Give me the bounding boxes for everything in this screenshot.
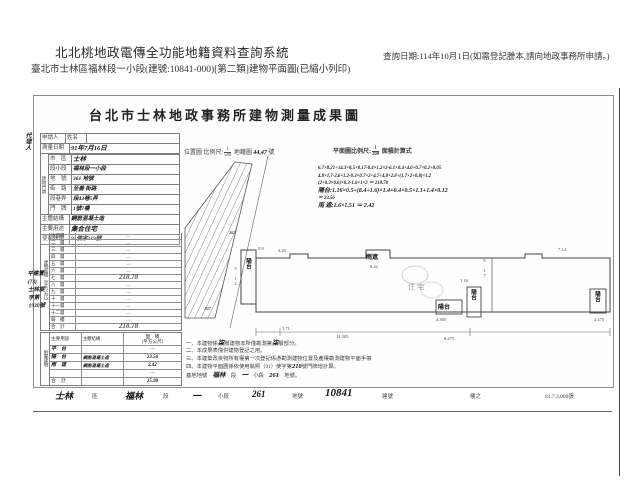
- parcel-number-2: 107: [204, 306, 211, 311]
- dim-top3: 7.14: [558, 247, 566, 252]
- dim-bottom2: 14.305: [336, 334, 348, 339]
- balcony-label-left: 陽台: [244, 258, 252, 269]
- area-row: 五 層—: [50, 261, 181, 268]
- annex-area: —: [124, 370, 181, 377]
- dim-bottom1: 1.71: [282, 326, 290, 331]
- dim-mid: 1.16: [460, 278, 468, 283]
- note-text: 層建物本所僅勘測第: [224, 341, 272, 347]
- agent-handwritten-note: 代理人: [23, 132, 30, 172]
- floor-label: 十二層: [50, 310, 76, 316]
- annex-row: 陽 台鋼筋混凝土造23.56: [50, 354, 181, 362]
- floor-value: 218.78: [76, 324, 181, 330]
- form-value: 士林: [72, 155, 180, 164]
- area-row: 七 層218.78: [50, 275, 181, 282]
- subsection-hand: 一: [192, 389, 201, 402]
- land-number-label: 地號: [292, 392, 303, 400]
- floor-value: —: [76, 240, 181, 246]
- notes-block: 一、本建物係柒層建物本所僅勘測第柒層部分。 二、本成果表僅供建物登記之用。 三、…: [186, 340, 516, 380]
- survey-drawing: [180, 150, 620, 350]
- form-label: 主體結構: [41, 215, 70, 224]
- annex-area: 25.98: [124, 378, 181, 385]
- floor-label: 騎 樓: [50, 317, 76, 323]
- form-row-survey-date: 測量日期 91年7月16日: [40, 144, 180, 154]
- form-row: 街 路 至善 街路: [49, 185, 180, 195]
- annex-building-table: 附屬建物 主要用途 主體結構 面 積（平方公尺） 平 台— 陽 台鋼筋混凝土造2…: [40, 332, 182, 386]
- form-value: 段43巷5弄: [72, 195, 180, 204]
- area-row: 六 層—: [50, 268, 181, 275]
- annex-row-total: 合 計25.98: [50, 378, 181, 385]
- dim-right-width: 2.475: [594, 317, 604, 322]
- annex-use: 雨 遮: [50, 362, 82, 369]
- subsection-label: 小段: [218, 392, 229, 400]
- area-row-total: 合 計218.78: [50, 324, 181, 330]
- balcony-label-mid: 陽台: [438, 302, 450, 311]
- note-line-4: 四、本建物平面圖係依使用執照（91）使字第218號門牌增計算。: [186, 363, 516, 371]
- annex-header-area-line2: （平方公尺）: [139, 339, 167, 344]
- floor-value: —: [76, 233, 181, 239]
- form-value: 361 地號: [72, 175, 180, 184]
- floor-label: 七 層: [50, 275, 76, 281]
- form-row-applicant: 申請人 姓名: [40, 133, 180, 144]
- floor-label: 地面層: [50, 233, 76, 239]
- base-text: 段: [231, 373, 236, 379]
- form-value: 鋼筋混凝土造: [70, 215, 180, 224]
- area-row: 十 層—: [50, 296, 181, 303]
- floor-label: 合 計: [50, 324, 76, 330]
- form-row: 門 牌 1號7樓: [49, 205, 180, 215]
- area-row: 九 層—: [50, 289, 181, 296]
- annex-row: —: [50, 370, 181, 378]
- dim-right-height: 8.17: [482, 258, 487, 278]
- floor-label: 六 層: [50, 268, 76, 274]
- scan-edge-line: [619, 88, 620, 476]
- form-label: 段小段: [49, 165, 72, 174]
- area-row: 十二層—: [50, 310, 181, 317]
- area-row: 四 層—: [50, 254, 181, 261]
- annex-header-area-line1: 面 積: [146, 334, 160, 339]
- form-value: 福林段一小段: [72, 165, 180, 174]
- floor-value: —: [76, 247, 181, 253]
- annex-header-area: 面 積（平方公尺）: [124, 334, 181, 345]
- floor-value: —: [76, 296, 181, 302]
- document-subtitle: 臺北市士林區福林段一小段(建號:10841-000)[第二類]建物平面圖(已縮小…: [31, 61, 350, 75]
- annex-struct: [82, 346, 124, 353]
- annex-side-label: 附屬建物: [41, 333, 50, 385]
- note-text: 號門牌增計算。: [302, 364, 339, 370]
- name-label: 姓名: [66, 134, 87, 143]
- floor-label: 四 層: [50, 254, 76, 260]
- form-value: 1號7樓: [72, 205, 180, 214]
- form-row: 地 號 361 地號: [49, 175, 180, 185]
- annex-rows: 主要用途 主體結構 面 積（平方公尺） 平 台— 陽 台鋼筋混凝土造23.56 …: [50, 333, 181, 385]
- annex-header-use: 主要用途: [50, 333, 82, 345]
- district-label: 區: [92, 392, 98, 400]
- applicant-label: 申請人: [41, 134, 66, 143]
- dim-balcony-width: 4.305: [436, 317, 446, 322]
- annex-struct: [82, 370, 124, 377]
- annex-header-struct: 主體結構: [82, 333, 124, 345]
- dim-left-height: 5.12: [233, 266, 238, 286]
- annex-use: 合 計: [50, 378, 82, 385]
- floor-label: 三 層: [50, 247, 76, 253]
- query-date-note: 查詢日期:114年10月1日(如需登記謄本,請向地政事務所申請。): [383, 50, 610, 62]
- floor-value: —: [76, 282, 181, 288]
- floor-value: —: [76, 261, 181, 267]
- floor-value: —: [76, 310, 181, 316]
- land-number-hand: 261: [252, 389, 266, 399]
- base-text: 地號。: [284, 373, 300, 379]
- form-label: 地 號: [49, 175, 72, 184]
- floor-label: 五 層: [50, 261, 76, 267]
- document-title: 台北市士林地政事務所建物測量成果圖: [70, 105, 380, 124]
- building-number-hand: 10841: [325, 387, 353, 399]
- note-hand: 218: [292, 363, 302, 370]
- area-rows: 地面層— 二 層— 三 層— 四 層— 五 層— 六 層— 七 層218.78 …: [50, 233, 181, 330]
- note-line-3: 三、本建築改良物所有權第一次登記係憑勘測建物位置及產權勘測建物平面手冊: [186, 356, 516, 363]
- annex-area: 2.42: [124, 362, 181, 369]
- section-label: 段: [163, 392, 169, 400]
- base-subsection-hand: 一: [241, 372, 248, 379]
- floor-value: —: [76, 289, 181, 295]
- note-line-2: 二、本成果表僅供建物登記之用。: [186, 348, 516, 355]
- form-label: 市 區: [49, 155, 72, 164]
- annex-area: —: [124, 346, 181, 353]
- annex-use: 陽 台: [50, 354, 82, 361]
- address-group-label: 建物門牌: [41, 154, 49, 215]
- form-label: 段巷弄: [49, 195, 72, 204]
- base-section-hand: 福林: [213, 372, 226, 379]
- base-parcel-line: 基地地號 福林 段 一 小段 261 地號。: [186, 372, 516, 380]
- floor-label: 八 層: [50, 282, 76, 288]
- note-text: 四、本建物平面圖係依使用執照（91）使字第: [186, 364, 292, 370]
- annex-struct: 鋼筋混凝土造: [82, 354, 124, 361]
- base-text: 小段: [253, 373, 264, 379]
- address-group: 建物門牌 市 區 士林 段小段 福林段一小段 地 號 361 地號 街 路 至善…: [40, 154, 180, 215]
- annex-use: 平 台: [50, 346, 82, 353]
- dim-top2: 4.26: [278, 248, 286, 253]
- dim-eave-width: 8.42: [370, 264, 378, 269]
- floor-value: —: [76, 303, 181, 309]
- form-row: 段小段 福林段一小段: [49, 165, 180, 175]
- base-label: 基地地號: [186, 373, 207, 379]
- note-text: 一、本建物係: [186, 341, 218, 347]
- annex-row: 雨 遮鋼筋混凝土造2.42: [50, 362, 181, 370]
- registration-stamp: 平建置 (73) 士林度 字第 1930號: [27, 270, 48, 311]
- annex-struct: 鋼筋混凝土造: [82, 362, 124, 369]
- form-value: 至善 街路: [72, 185, 180, 194]
- floor-label: 九 層: [50, 289, 76, 295]
- address-rows: 市 區 士林 段小段 福林段一小段 地 號 361 地號 街 路 至善 街路 段…: [49, 154, 180, 215]
- applicant-value: [87, 134, 180, 143]
- floor-value: —: [76, 254, 181, 260]
- balcony-label-mid-vert: 陽台: [469, 289, 477, 300]
- survey-date-label: 測量日期: [41, 144, 70, 153]
- form-row: 段巷弄 段43巷5弄: [49, 195, 180, 205]
- dwelling-label: 住宅: [408, 282, 426, 292]
- document-bottom-line: [33, 411, 612, 412]
- form-row: 市 區 士林: [49, 154, 180, 165]
- floor-label: 十 層: [50, 296, 76, 302]
- form-label: 門 牌: [49, 205, 72, 214]
- area-row: 二 層—: [50, 240, 181, 247]
- system-title: 北北桃地政電傳全功能地籍資料查詢系統: [55, 42, 289, 61]
- applicant-form: 申請人 姓名 測量日期 91年7月16日 建物門牌 市 區 士林 段小段 福林段…: [40, 133, 180, 245]
- building-area-table: 建物面積（平方公尺） 地面層— 二 層— 三 層— 四 層— 五 層— 六 層—…: [40, 233, 182, 331]
- survey-date-value: 91年7月16日: [70, 144, 180, 153]
- area-row: 騎 樓—: [50, 317, 181, 324]
- area-row: 地面層—: [50, 233, 181, 240]
- note-text: 層部分。: [278, 341, 299, 347]
- eave-label: 雨遮: [366, 252, 378, 261]
- floor-suffix-label: 樓之: [470, 392, 481, 400]
- form-label: 街 路: [49, 185, 72, 194]
- balcony-label-right: 陽台: [593, 291, 601, 302]
- parcel-hatch: [185, 162, 252, 318]
- building-number-label: 建號: [382, 392, 393, 400]
- annex-use: [50, 370, 82, 377]
- district-hand: 士林: [55, 389, 73, 402]
- parcel-number-1: 263: [229, 230, 236, 235]
- dim-top1: 0.9: [258, 246, 264, 251]
- annex-area: 23.56: [124, 354, 181, 361]
- floor-label: 十一層: [50, 303, 76, 309]
- floor-label: 二 層: [50, 240, 76, 246]
- area-row: 三 層—: [50, 247, 181, 254]
- area-row: 八 層—: [50, 282, 181, 289]
- section-hand: 福林: [125, 389, 143, 402]
- annex-struct: [82, 378, 124, 385]
- bottom-strip: 士林 區 福林 段 一 小段 261 地號 10841 建號 樓之 81.7.3…: [40, 389, 615, 407]
- print-batch-info: 81.7.3,000張: [545, 392, 574, 400]
- annex-row: 平 台—: [50, 346, 181, 354]
- form-row-structure: 主體結構 鋼筋混凝土造: [40, 215, 180, 225]
- area-row: 十一層—: [50, 303, 181, 310]
- annex-header-row: 主要用途 主體結構 面 積（平方公尺）: [50, 333, 181, 346]
- base-landno-hand: 261: [269, 372, 279, 379]
- floor-value: 218.78: [76, 275, 181, 281]
- floorplan-outline: [256, 250, 610, 312]
